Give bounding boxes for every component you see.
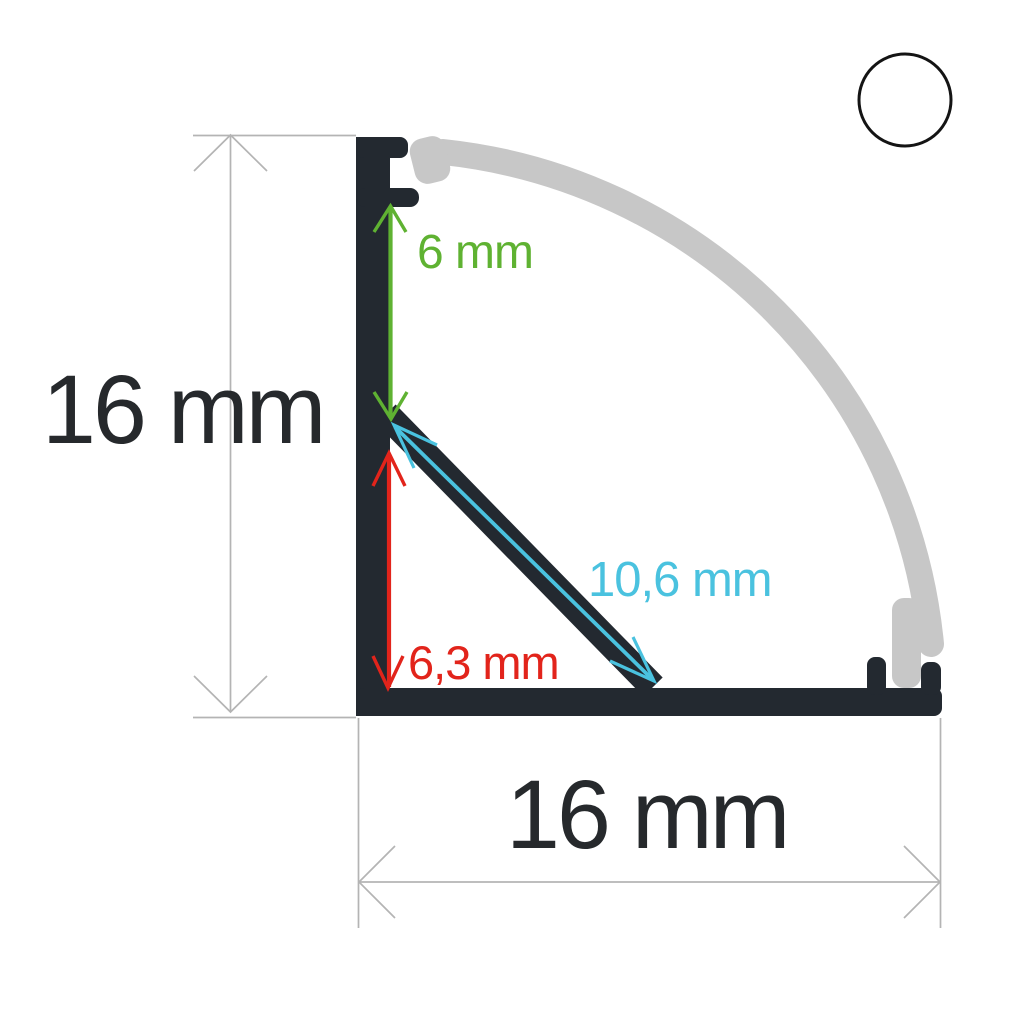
diffuser-bottom-hook: [892, 598, 921, 688]
profile-vertical-wall: [356, 137, 390, 716]
profile-top-cap: [356, 137, 408, 158]
profile-base-bar: [356, 688, 942, 716]
total-height-label: 16 mm: [42, 361, 323, 458]
bottom-depth-label: 6,3 mm: [408, 639, 559, 686]
top-depth-label: 6 mm: [417, 229, 533, 277]
diagonal-label: 10,6 mm: [588, 556, 772, 605]
diagram-canvas: 16 mm 16 mm 6 mm 6,3 mm 10,6 mm: [0, 0, 1024, 1024]
profile-bottom-hook-right: [921, 662, 941, 695]
circle-badge-icon: [859, 54, 951, 146]
total-width-label: 16 mm: [506, 766, 787, 863]
profile-drawing: [0, 0, 1024, 1024]
profile-bottom-hook-left: [867, 657, 886, 695]
profile-upper-hook: [356, 188, 419, 207]
